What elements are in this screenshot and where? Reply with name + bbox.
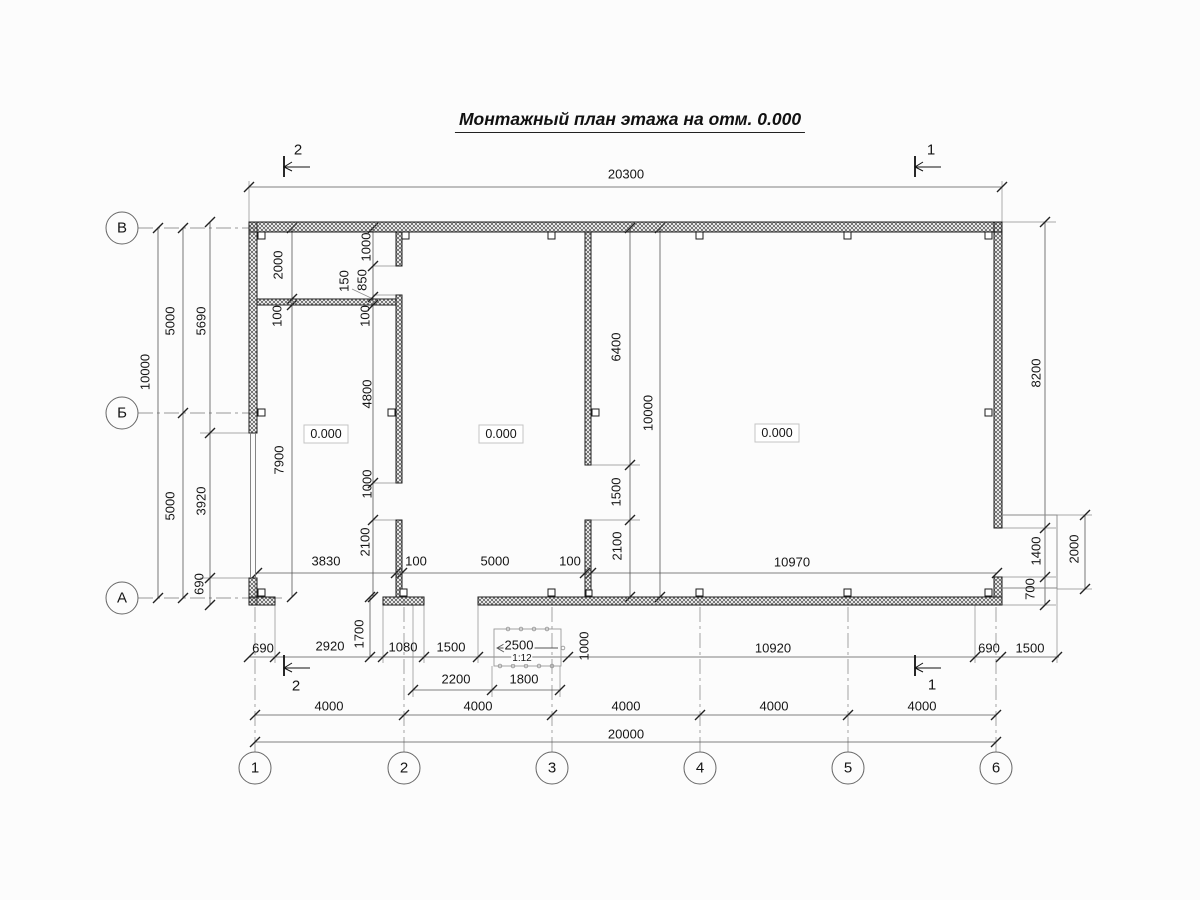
walls-group <box>249 222 1002 605</box>
floor-plan-drawing: Монтажный план этажа на отм. 0.000 20300… <box>0 0 1200 900</box>
ramp-outline <box>494 627 565 668</box>
room-level-boxes <box>304 424 799 443</box>
column-marks <box>258 232 992 596</box>
dimension-ticks <box>153 182 1090 747</box>
dimension-lines <box>158 187 1085 742</box>
ramp-slope-arrow <box>497 644 558 652</box>
left-wall-opening <box>251 433 256 578</box>
plan-geometry <box>0 0 1200 900</box>
axis-bubbles <box>106 212 1012 784</box>
axis-lines <box>138 228 996 752</box>
